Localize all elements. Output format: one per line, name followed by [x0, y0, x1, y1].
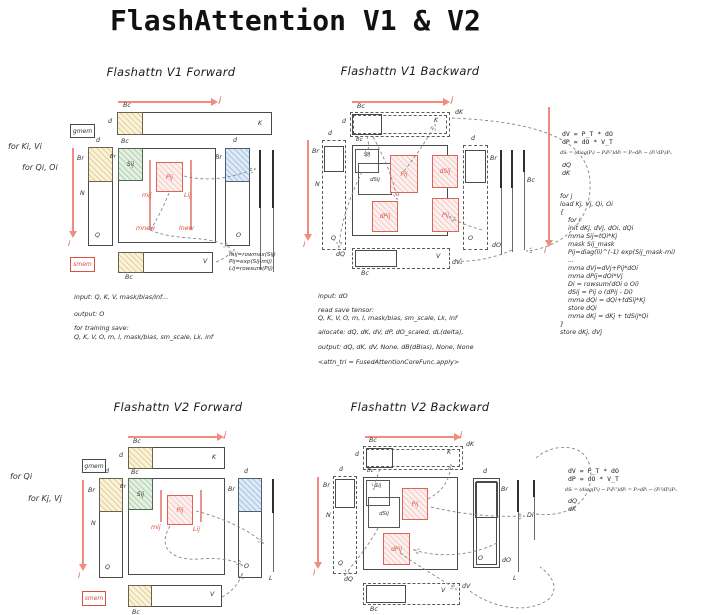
v1b-note-read: read save tensor:: [318, 306, 374, 314]
code-line: store dKj, dVj: [560, 329, 675, 337]
code-line: {: [560, 209, 675, 217]
v1b-d-o: d: [471, 136, 475, 142]
v1b-dq-label: dQ: [336, 252, 345, 258]
v1f-title: Flashattn V1 Forward: [96, 65, 246, 79]
v1f-loop1: for Ki, Vi: [8, 143, 42, 151]
v2b-j-arrow: [365, 436, 455, 438]
v2b-br-q: Br: [323, 483, 330, 489]
v1f-mnew-label: mnew: [136, 226, 155, 232]
v2f-d-q: d: [105, 469, 109, 475]
code-line: }: [560, 321, 675, 329]
side2-dv-eq: dV = P_T * dO: [568, 468, 619, 475]
v1f-note-input: input: Q, K, V, mask/bias/inf...: [74, 293, 168, 301]
v1f-lnew-label: lnew: [179, 226, 194, 232]
v2b-d-o: d: [483, 469, 487, 475]
v1b-pij-block: Pij: [390, 155, 418, 193]
v2f-sij-block: Sij: [128, 478, 153, 510]
v2b-dv-label: dV: [462, 584, 470, 590]
v2b-o-label: O: [478, 556, 483, 562]
code-line: for i: [560, 217, 675, 225]
v2f-k-label: K: [212, 455, 216, 461]
side1-dv-eq: dV = P_T * dO: [562, 131, 613, 138]
v1f-note-save-title: for training save:: [74, 324, 129, 332]
v1b-tile-k: [352, 114, 382, 135]
v1b-o-label: O: [468, 236, 473, 242]
v2f-o-label: O: [244, 564, 249, 570]
v1b-vec3: [523, 150, 525, 172]
v1b-vec3-tail: [524, 172, 525, 250]
v2b-pij-block: Pij: [402, 488, 428, 520]
v1b-note-attn-tri: <attn_tri = FusedAttentionCoreFunc.apply…: [318, 358, 459, 366]
code-line: mma dKj = dKj + tdSij*Qi: [560, 313, 675, 321]
v1b-d-k: d: [342, 119, 346, 125]
v1b-i-arrow: [307, 140, 309, 235]
code-line: Pij=diag(li)^(-1) exp(Sij_mask-mi): [560, 249, 675, 257]
v2f-br-q: Br: [88, 488, 95, 494]
side2-dq: dQ: [568, 497, 577, 505]
v1f-smem-box: smem: [70, 257, 95, 272]
v2f-l-vector-tail: [273, 513, 274, 572]
v1f-l-vector: [272, 150, 274, 208]
v1f-bc-sq: Bc: [121, 139, 129, 145]
v2b-bc-sq: Bc: [367, 469, 374, 474]
v2b-title: Flashattn V2 Backward: [340, 400, 500, 414]
code-line: mask Sij_mask: [560, 241, 675, 249]
code-line: Di = rowsum(dOi o Oi): [560, 281, 675, 289]
v1f-mij-label: mij: [142, 193, 152, 199]
v1b-pij2-block: Pij: [432, 198, 459, 232]
v1f-l-vector-tail: [273, 208, 274, 272]
v2f-smem-box: smem: [82, 591, 106, 606]
code-line: mma dVj=dVj+Pij*dOi: [560, 265, 675, 273]
v2b-tile-o: [475, 482, 498, 518]
v2f-v-label: V: [210, 592, 214, 598]
v1f-bc-v: Bc: [125, 275, 133, 281]
side1-dk: dK: [562, 169, 570, 177]
side2-ds-formula: dSᵢ = (diag(Pᵢ) − PᵢPᵢᵀ)dPᵢ = Pᵢ∘dPᵢ − (…: [565, 488, 677, 493]
v2f-j-arrow: [128, 436, 218, 438]
v1f-tile-k: [117, 112, 143, 135]
v1b-n-q: N: [315, 182, 320, 188]
code-line: for j: [560, 193, 675, 201]
code-line: mma Sij=tQi*Kj: [560, 233, 675, 241]
v2f-j-label: j: [224, 431, 226, 439]
v1f-bc-k: Bc: [123, 103, 131, 109]
v1b-j-label: j: [451, 96, 453, 104]
v2f-loop2: for Kj, Vj: [28, 495, 62, 503]
v2f-n-q: N: [91, 521, 96, 527]
v1b-k-label: K: [434, 118, 438, 124]
v1b-d-q: d: [328, 131, 332, 137]
v1b-br-o: Br: [490, 156, 497, 162]
v1f-formula-2: Pij=exp(Sij-mij): [229, 259, 272, 266]
v1b-v-label: V: [436, 254, 440, 260]
code-line: init dKj, dVj, dOi, dQi: [560, 225, 675, 233]
v2b-v-label: V: [441, 588, 445, 594]
v1f-k-label: K: [258, 121, 262, 127]
v1f-o-label: O: [236, 233, 241, 239]
v2b-lse-label: L: [513, 576, 517, 582]
v1b-note-output: output: dQ, dK, dV, None, dB(dBias), Non…: [318, 343, 474, 351]
page-title: FlashAttention V1 & V2: [110, 4, 481, 37]
v1b-note-allocate: allocate: dQ, dK, dV, dP, dO_scaled, dL(…: [318, 328, 463, 336]
v2b-dsij-box: dSij: [368, 497, 400, 528]
v1f-pij-block: Pij: [156, 162, 183, 192]
v2f-bc-v: Bc: [132, 610, 140, 615]
v1f-gmem-box: gmem: [70, 124, 95, 138]
v2b-dpij-block: dPij: [383, 533, 410, 565]
code-line: mma dPij=dOi*Vj: [560, 273, 675, 281]
v2b-i-label: i: [313, 569, 315, 577]
v1f-v-label: V: [203, 259, 207, 265]
v2f-br-o: Br: [228, 487, 235, 493]
v1f-i-label: i: [68, 240, 70, 248]
code-line: load Kj, Vj, Qi, Oi: [560, 201, 675, 209]
v1b-tile-q: [324, 146, 344, 172]
v1f-m-vector: [259, 150, 261, 208]
v2f-pij-block: Pij: [167, 495, 193, 525]
v1b-dv-label: dV: [452, 260, 460, 266]
v1f-br-sq: Br: [110, 155, 116, 160]
v2f-tile-o: [238, 478, 262, 512]
v1f-i-arrow: [72, 148, 74, 232]
v1f-note-save-list: Q, K, V, O, m, l, mask/bias, sm_scale, L…: [74, 333, 213, 341]
v1b-bc-sq: Bc: [356, 138, 363, 143]
v1f-br-q: Br: [77, 156, 84, 162]
v1b-vec2: [511, 150, 513, 188]
v2b-l-vector-tail: [518, 512, 519, 572]
v2b-d-k: d: [355, 452, 359, 458]
side1-ds-formula: dSᵢ = (diag(Pᵢ) − PᵢPᵢᵀ)dPᵢ = Pᵢ∘dPᵢ − (…: [560, 151, 672, 156]
v1f-j-arrow: [118, 101, 212, 103]
v2f-mij-label: mij: [151, 525, 161, 531]
v2f-lse-label: L: [269, 576, 273, 582]
v1f-tile-q: [88, 147, 113, 182]
v1b-i-label: i: [303, 241, 305, 249]
v2f-bc-k: Bc: [133, 439, 141, 445]
v2b-d-vector: [533, 480, 535, 497]
v1f-loop2: for Qi, Oi: [22, 164, 58, 172]
v1b-dpij-block: dPij: [372, 201, 398, 232]
v1b-vec2-tail: [512, 188, 513, 252]
v1f-formula-1: mij=rowmax(Sij): [229, 252, 276, 259]
v1f-br-o: Br: [215, 155, 222, 161]
v2f-d-k: d: [119, 453, 123, 459]
v2b-tile-q: [335, 479, 355, 508]
v2f-bc-sq: Bc: [131, 470, 139, 476]
v2b-i-arrow: [317, 477, 319, 563]
v2b-l-vector: [517, 480, 519, 512]
v1b-bc-k: Bc: [357, 104, 365, 110]
v1f-j-label: j: [219, 96, 221, 104]
v1f-d-k: d: [108, 119, 112, 125]
v2b-br-o: Br: [501, 487, 508, 493]
v2f-i-arrow: [82, 480, 84, 565]
v1b-title: Flashattn V1 Backward: [330, 64, 490, 78]
v1f-tile-v: [118, 252, 144, 273]
v1b-dsij-red-block: dSij: [432, 155, 458, 188]
code-line: store dQi: [560, 305, 675, 313]
v1b-dk-label: dK: [455, 110, 463, 116]
v2b-dq-label: dQ: [344, 577, 353, 583]
code-line: mma dQi = dQi+tdSij*Kj: [560, 297, 675, 305]
v2b-d-q: d: [339, 467, 343, 473]
v1f-note-output: output: O: [74, 310, 104, 318]
v2f-l-vector: [272, 479, 274, 513]
code-line: ...: [560, 257, 675, 265]
v1f-n-q: N: [80, 191, 85, 197]
v1f-q-label: Q: [95, 233, 100, 239]
v1b-q-label: Q: [331, 236, 336, 242]
v1f-lij-label: Lij: [184, 193, 191, 199]
v2b-do-label: dO: [502, 558, 511, 564]
side1-dq: dQ: [562, 161, 571, 169]
v2b-tile-k: [366, 448, 393, 468]
v2f-loop1: for Qi: [10, 473, 32, 481]
v2f-i-label: i: [78, 572, 80, 580]
v2f-tile-v: [128, 585, 152, 607]
v2f-lij-label: Lij: [193, 527, 200, 533]
v2b-di-label: Di: [527, 513, 534, 519]
v1b-i-arrow-right: [548, 107, 550, 241]
v1b-br-q: Br: [312, 149, 319, 155]
v1b-bc-vec: Bc: [527, 178, 535, 184]
v2f-q-label: Q: [105, 565, 110, 571]
v2b-bc-k: Bc: [369, 438, 377, 444]
side1-dp-eq: dP = dO * V_T: [562, 139, 613, 146]
v1b-note-input: input: dO: [318, 292, 348, 300]
code-line: dSij = Pij o (dPij - Di): [560, 289, 675, 297]
flashattention-whiteboard: FlashAttention V1 & V2 Flashattn V1 Forw…: [0, 0, 720, 615]
v2b-n-q: N: [326, 513, 331, 519]
v1f-formula-3: Lij=rowsum(Pij): [229, 266, 273, 273]
v2f-tile-k: [128, 447, 153, 469]
v1b-i-label-right: i: [544, 247, 546, 255]
v1f-tile-o: [225, 148, 250, 182]
v2b-tile-v: [366, 585, 406, 603]
v1b-note-read-list: Q, K, V, O, m, l, mask/bias, sm_scale, L…: [318, 314, 457, 322]
v2f-m-line: [160, 490, 162, 522]
v1b-vec1-tail: [501, 188, 502, 255]
side2-dp-eq: dP = dO * V_T: [568, 476, 619, 483]
side2-dk: dK: [568, 505, 576, 513]
v2f-l-line: [200, 490, 202, 522]
v2f-br-sq: Br: [120, 485, 126, 490]
v1f-d-o: d: [233, 138, 237, 144]
v2b-q-label: Q: [338, 561, 343, 567]
v2b-j-label: j: [460, 431, 462, 439]
v1b-tile-o: [465, 150, 486, 183]
v2b-dk-label: dK: [466, 442, 474, 448]
v1f-d-q: d: [96, 138, 100, 144]
side1-pseudocode: for j load Kj, Vj, Qi, Oi { for i init d…: [560, 193, 675, 337]
v1b-vec1: [500, 150, 502, 188]
v2f-d-o: d: [244, 469, 248, 475]
v1b-j-arrow: [352, 101, 444, 103]
v1b-dsij-box: dSij: [358, 163, 392, 195]
v2b-k-label: K: [447, 450, 451, 456]
v1f-sij-block: Sij: [118, 148, 143, 181]
v2f-title: Flashattn V2 Forward: [103, 400, 253, 414]
v1b-bc-v: Bc: [361, 271, 369, 277]
v1b-tile-v: [355, 250, 397, 267]
v2b-bc-v: Bc: [370, 607, 378, 613]
v2f-gmem-box: gmem: [82, 459, 106, 473]
